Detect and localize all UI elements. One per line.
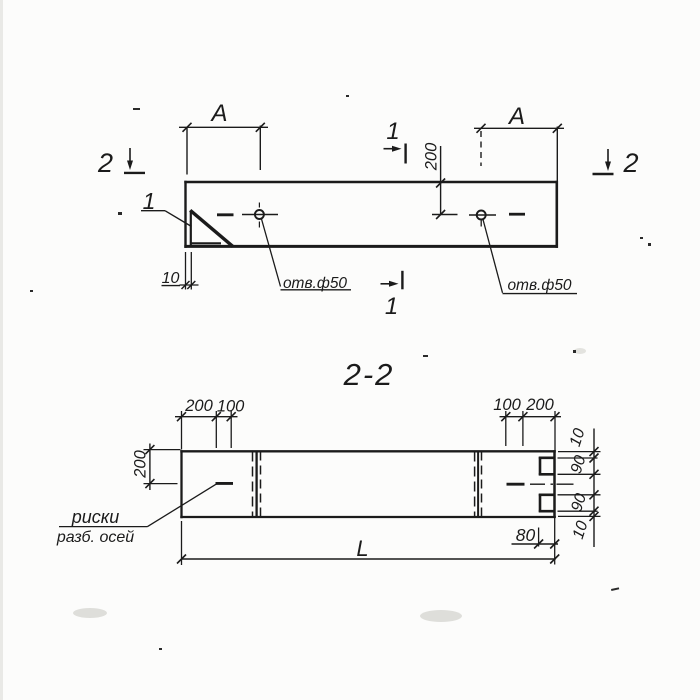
- svg-text:10: 10: [162, 270, 180, 287]
- svg-text:80: 80: [516, 525, 536, 545]
- svg-text:A: A: [507, 103, 525, 130]
- svg-text:200: 200: [184, 397, 213, 415]
- svg-text:100: 100: [493, 396, 521, 414]
- svg-text:L: L: [356, 536, 368, 561]
- svg-text:A: A: [209, 100, 227, 127]
- svg-text:риски: риски: [71, 507, 120, 527]
- svg-text:1: 1: [385, 293, 398, 320]
- svg-text:100: 100: [217, 398, 245, 416]
- svg-text:отв.ф50: отв.ф50: [507, 277, 571, 294]
- svg-text:200: 200: [525, 396, 554, 414]
- svg-text:отв.ф50: отв.ф50: [283, 275, 347, 292]
- svg-text:1: 1: [386, 118, 399, 145]
- svg-text:1: 1: [143, 188, 156, 214]
- svg-text:разб. осей: разб. осей: [56, 529, 134, 546]
- svg-text:2-2: 2-2: [343, 357, 395, 392]
- svg-text:200: 200: [423, 142, 441, 171]
- svg-text:2: 2: [622, 148, 638, 178]
- svg-text:2: 2: [97, 148, 113, 178]
- svg-text:200: 200: [132, 449, 150, 478]
